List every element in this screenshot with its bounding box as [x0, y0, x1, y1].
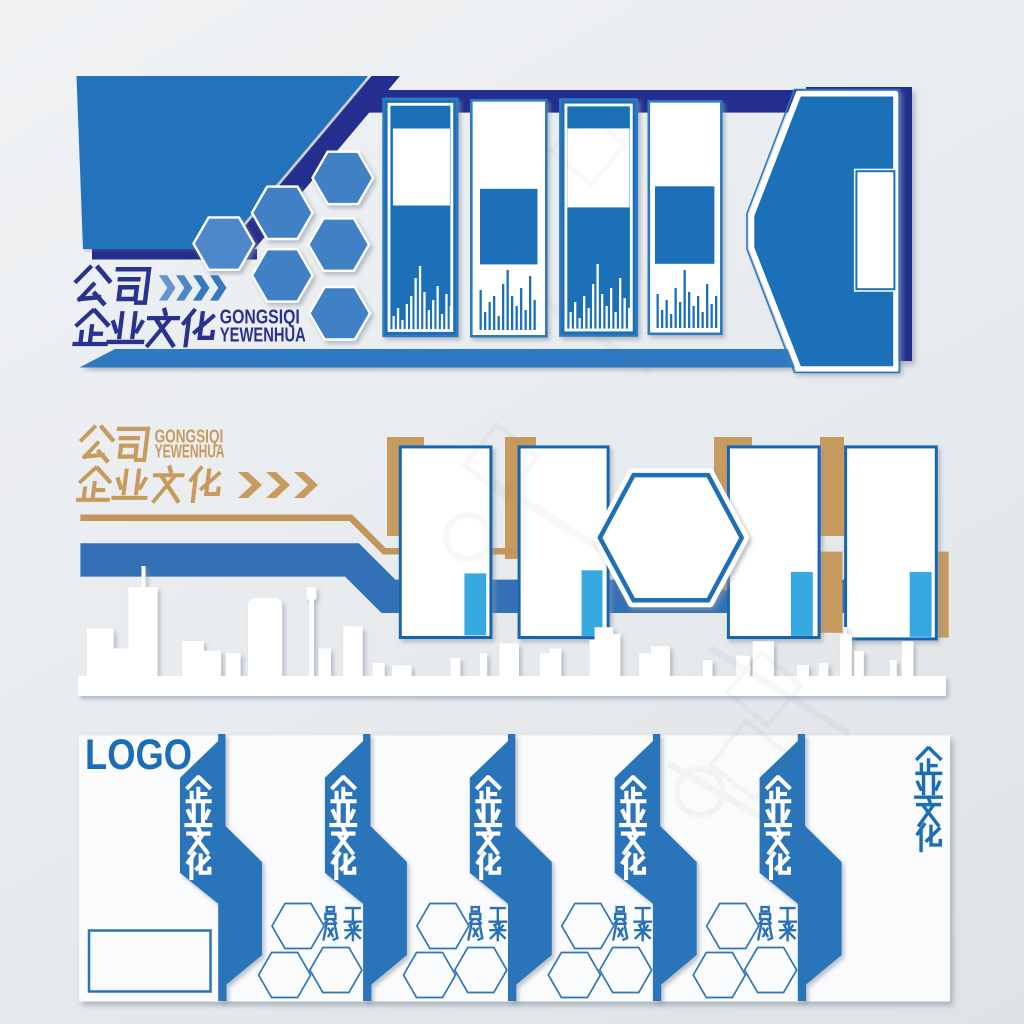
svg-text:YEWENHUA: YEWENHUA — [220, 324, 306, 346]
svg-text:LOGO: LOGO — [85, 731, 192, 779]
svg-text:YEWENHUA: YEWENHUA — [155, 441, 225, 461]
